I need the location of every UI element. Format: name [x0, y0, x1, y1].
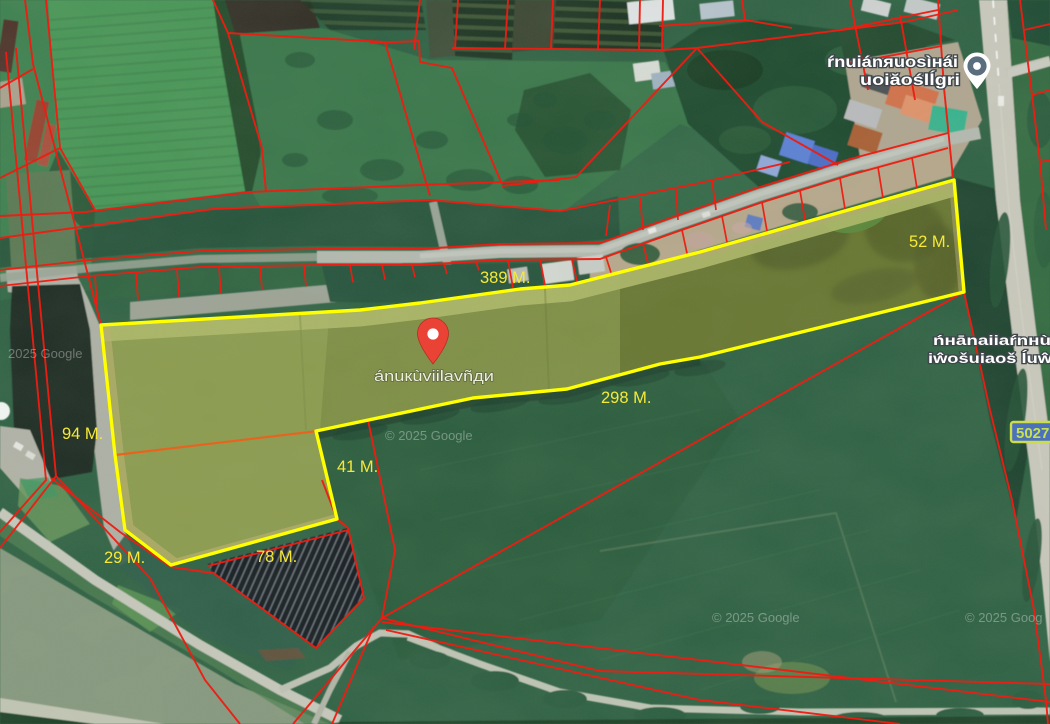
svg-text:© 2025 Google: © 2025 Google	[712, 610, 800, 625]
svg-text:78 M.: 78 M.	[256, 548, 297, 566]
svg-text:ánuкùviilavñди: ánuкùviilavñди	[374, 368, 494, 385]
svg-text:© 2025 Google: © 2025 Google	[385, 428, 473, 443]
svg-text:© 2025 Goog: © 2025 Goog	[965, 610, 1043, 625]
svg-text:ńнānaiiaŕnнù: ńнānaiiaŕnнù	[933, 332, 1050, 348]
svg-text:41 M.: 41 M.	[337, 458, 378, 476]
svg-text:94 M.: 94 M.	[62, 425, 103, 443]
svg-text:ŕnuiánяuosìнái: ŕnuiánяuosìнái	[827, 54, 958, 71]
svg-text:2025 Google: 2025 Google	[8, 346, 82, 361]
svg-text:5027: 5027	[1016, 425, 1049, 442]
svg-text:29 M.: 29 M.	[104, 549, 145, 567]
svg-text:52 M.: 52 M.	[909, 233, 950, 251]
svg-text:298 M.: 298 M.	[601, 389, 651, 407]
svg-text:iŵošuiaoš ĺuŵ: iŵošuiaoš ĺuŵ	[928, 349, 1050, 366]
svg-text:389 M.: 389 M.	[480, 269, 530, 287]
svg-text:uoiăoślĺgri: uoiăoślĺgri	[860, 69, 960, 89]
